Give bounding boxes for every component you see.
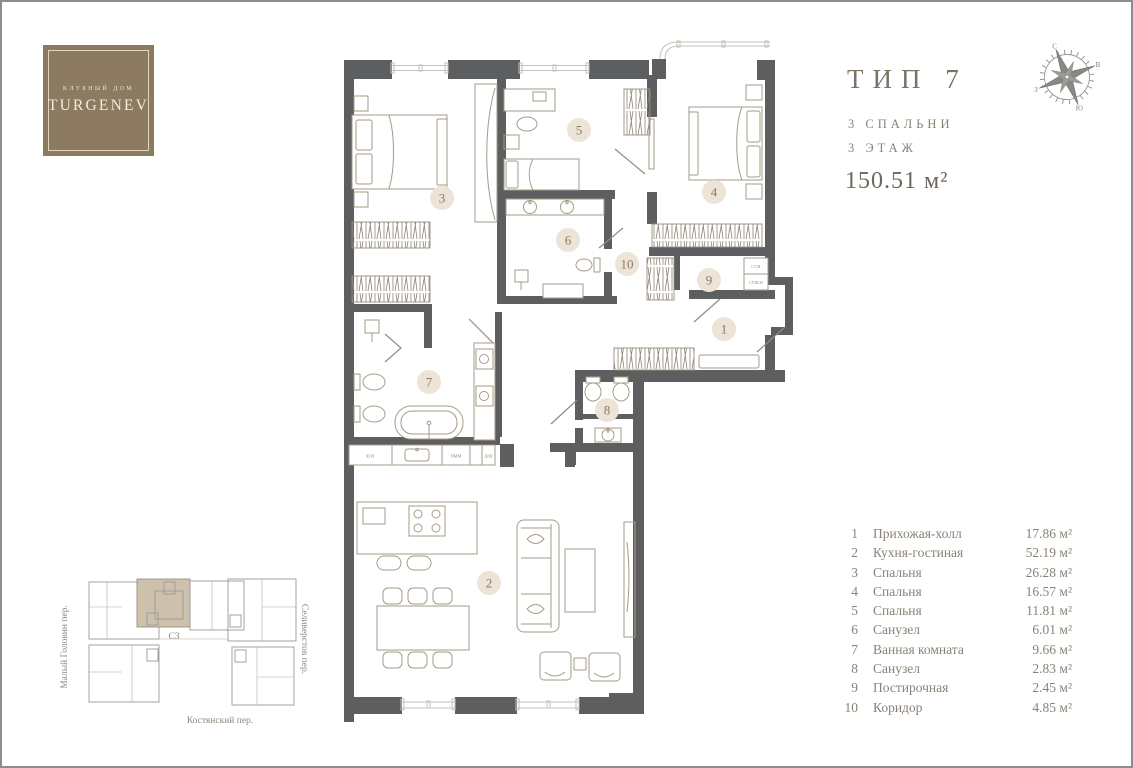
fridge-label: ХОЛ: [366, 454, 375, 459]
vanity: [506, 199, 604, 215]
legend-row: 7Ванная комната9.66 м²: [840, 642, 1072, 661]
stair-hatch: [147, 649, 158, 661]
room-number-9: 9: [706, 273, 713, 288]
legend-row: 10Коридор4.85 м²: [840, 700, 1072, 719]
room-number-8: 8: [604, 403, 611, 418]
sink: [602, 429, 614, 441]
room-9-laundry: СТ.М СУШ.М: [744, 258, 768, 290]
floor-subtitle: 3 ЭТАЖ: [848, 141, 917, 156]
door-swing: [615, 149, 645, 174]
street-left-label: Малый Головин пер.: [59, 605, 70, 689]
wardrobe: [614, 348, 694, 370]
legend-area: 26.28 м²: [1000, 565, 1072, 581]
wardrobe: [652, 224, 762, 247]
dishwasher-label: ПММ: [451, 454, 462, 459]
room-4-bedroom: [615, 85, 762, 247]
wardrobe: [647, 258, 674, 300]
dryer-label: СУШ.М: [749, 281, 763, 285]
legend-area: 9.66 м²: [1000, 642, 1072, 658]
bidet-tank: [354, 406, 360, 422]
legend-row: 3Спальня26.28 м²: [840, 565, 1072, 584]
bidet: [613, 383, 629, 401]
legend-name: Прихожая-холл: [873, 526, 1000, 542]
shower-door: [385, 334, 401, 362]
legend-num: 7: [840, 642, 858, 658]
legend-row: 6Санузел6.01 м²: [840, 622, 1072, 641]
room-10-corridor: [647, 258, 674, 300]
legend-row: 2Кухня-гостиная52.19 м²: [840, 545, 1072, 564]
chair: [433, 652, 452, 668]
room-number-7: 7: [426, 375, 433, 390]
wardrobe: [352, 222, 430, 248]
toilet-tank: [586, 377, 600, 383]
nightstand: [746, 85, 762, 100]
compass-north-label: С: [1052, 43, 1057, 51]
legend-name: Санузел: [873, 622, 1000, 638]
brand-logo-subtitle: КЛУБНЫЙ ДОМ: [63, 86, 134, 92]
bar-stool: [407, 556, 431, 570]
stair-hatch: [235, 650, 246, 662]
floorplan-page: КЛУБНЫЙ ДОМ TURGENEV ТИП 7 3 СПАЛЬНИ 3 Э…: [0, 0, 1133, 768]
bench: [699, 355, 759, 368]
legend-num: 3: [840, 565, 858, 581]
toilet-tank: [594, 258, 600, 272]
toilet: [585, 383, 601, 401]
chair: [408, 588, 427, 604]
legend-name: Кухня-гостиная: [873, 545, 1000, 561]
legend-num: 1: [840, 526, 858, 542]
plan-type-title: ТИП 7: [847, 64, 968, 95]
legend-name: Постирочная: [873, 680, 1000, 696]
legend-name: Ванная комната: [873, 642, 1000, 658]
washer-label: СТ.М: [751, 265, 761, 269]
nightstand: [354, 192, 368, 207]
legend-area: 2.45 м²: [1000, 680, 1072, 696]
legend-name: Спальня: [873, 584, 1000, 600]
legend-name: Спальня: [873, 565, 1000, 581]
nightstand: [504, 135, 519, 149]
shower-tray: [543, 284, 583, 298]
legend-name: Коридор: [873, 700, 1000, 716]
bidet-tank: [614, 377, 628, 383]
door-swing: [469, 319, 495, 345]
coffee-table: [565, 549, 595, 612]
toilet-tank: [354, 374, 360, 390]
desk-chair: [517, 117, 537, 131]
shower-head: [365, 320, 379, 333]
legend-num: 2: [840, 545, 858, 561]
toilet: [576, 259, 592, 271]
legend-row: 9Постирочная2.45 м²: [840, 680, 1072, 699]
sofa: [517, 520, 559, 632]
legend-name: Спальня: [873, 603, 1000, 619]
floor-plan: СТ.М СУШ.М: [337, 32, 807, 732]
door-swing: [694, 299, 720, 322]
shower-head: [515, 270, 528, 282]
site-section-label: С3: [168, 632, 179, 642]
room-1-hall: [614, 299, 785, 370]
room-number-3: 3: [439, 191, 446, 206]
legend-num: 10: [840, 700, 858, 716]
street-bottom-label: Костянский пер.: [187, 715, 253, 726]
compass-star: [1028, 38, 1106, 116]
tall-cabinet: [475, 84, 497, 222]
nightstand: [354, 96, 368, 111]
nightstand: [746, 184, 762, 199]
legend-num: 8: [840, 661, 858, 677]
door-swing: [551, 400, 577, 424]
room-legend: 1Прихожая-холл17.86 м² 2Кухня-гостиная52…: [840, 526, 1072, 719]
legend-area: 52.19 м²: [1000, 545, 1072, 561]
legend-row: 4Спальня16.57 м²: [840, 584, 1072, 603]
double-bed: [689, 107, 762, 180]
bidet: [363, 406, 385, 422]
legend-row: 8Санузел2.83 м²: [840, 661, 1072, 680]
single-bed: [504, 159, 579, 190]
total-area-value: 150.51 м²: [845, 168, 948, 195]
compass-south-label: Ю: [1076, 105, 1083, 113]
oven-label: Д/Ш: [484, 454, 493, 459]
chair: [408, 652, 427, 668]
stair-hatch: [230, 615, 241, 627]
kitchen-counter: ХОЛ ПММ Д/Ш: [349, 445, 495, 465]
room-number-2: 2: [486, 576, 493, 591]
compass-rose: С В Ю З: [1028, 38, 1106, 116]
legend-area: 11.81 м²: [1000, 603, 1072, 619]
side-table: [574, 658, 586, 670]
legend-area: 4.85 м²: [1000, 700, 1072, 716]
chair: [383, 652, 402, 668]
room-number-1: 1: [721, 322, 728, 337]
brand-logo-frame: КЛУБНЫЙ ДОМ TURGENEV: [48, 50, 149, 151]
walkin-closet: [624, 89, 650, 135]
chair: [383, 588, 402, 604]
legend-area: 6.01 м²: [1000, 622, 1072, 638]
wardrobe: [352, 276, 430, 302]
double-bed: [352, 115, 447, 189]
legend-row: 5Спальня11.81 м²: [840, 603, 1072, 622]
brand-logo: КЛУБНЫЙ ДОМ TURGENEV: [43, 45, 154, 156]
highlighted-unit: [137, 579, 190, 627]
street-right-label: Селиверстов пер.: [299, 604, 309, 674]
legend-area: 2.83 м²: [1000, 661, 1072, 677]
legend-num: 5: [840, 603, 858, 619]
legend-row: 1Прихожая-холл17.86 м²: [840, 526, 1072, 545]
chair: [433, 588, 452, 604]
toilet: [363, 374, 385, 390]
bar-stool: [377, 556, 401, 570]
room-number-4: 4: [711, 185, 718, 200]
legend-name: Санузел: [873, 661, 1000, 677]
dining-table: [377, 606, 469, 650]
legend-num: 4: [840, 584, 858, 600]
site-plan: С3 Малый Головин пер. Селиверстов пер. К…: [52, 577, 322, 732]
compass-west-label: З: [1034, 86, 1038, 94]
legend-area: 17.86 м²: [1000, 526, 1072, 542]
room-number-10: 10: [621, 257, 634, 272]
room-number-5: 5: [576, 123, 583, 138]
room-number-6: 6: [565, 233, 572, 248]
brand-logo-name: TURGENEV: [48, 97, 149, 115]
compass-east-label: В: [1096, 61, 1101, 69]
site-buildings: [89, 579, 296, 705]
bedrooms-subtitle: 3 СПАЛЬНИ: [848, 117, 953, 132]
legend-num: 9: [840, 680, 858, 696]
legend-area: 16.57 м²: [1000, 584, 1072, 600]
desk: [504, 89, 555, 111]
legend-num: 6: [840, 622, 858, 638]
